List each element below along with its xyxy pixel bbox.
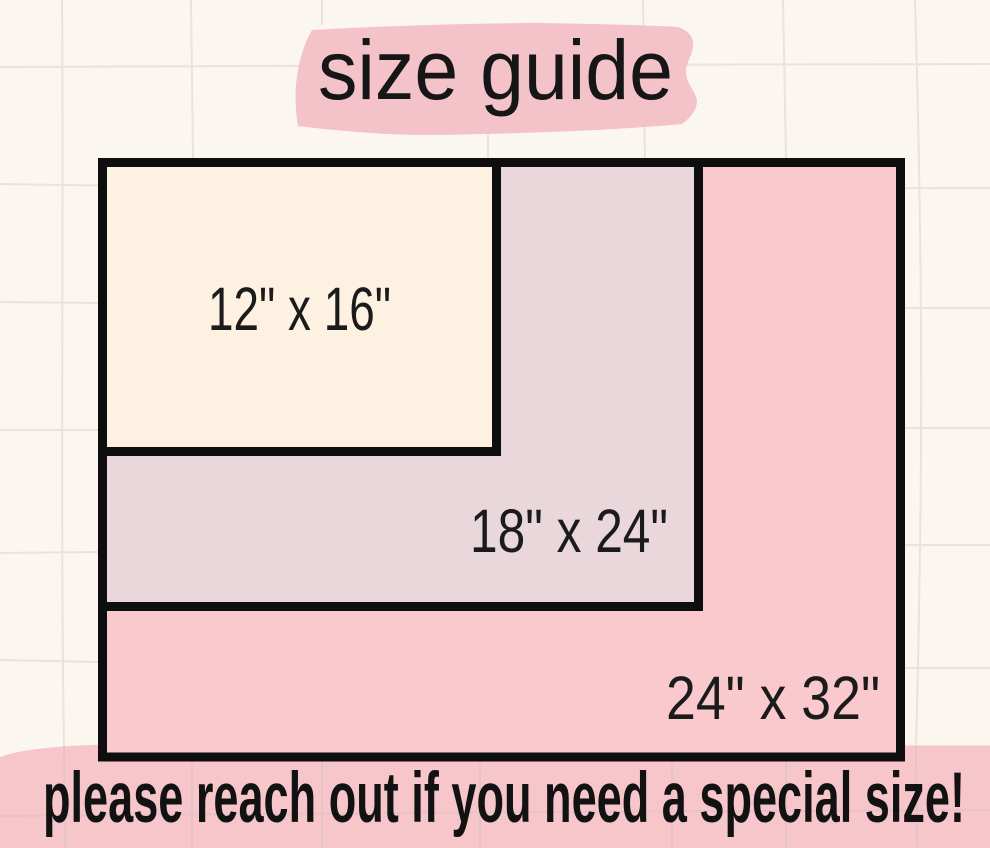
svg-text:24" x 32": 24" x 32"	[666, 664, 880, 732]
svg-text:18" x 24": 18" x 24"	[470, 497, 668, 565]
svg-text:12" x 16": 12" x 16"	[208, 275, 391, 343]
svg-text:size guide: size guide	[318, 23, 673, 117]
svg-text:please reach out if you need a: please reach out if you need a special s…	[43, 759, 965, 838]
